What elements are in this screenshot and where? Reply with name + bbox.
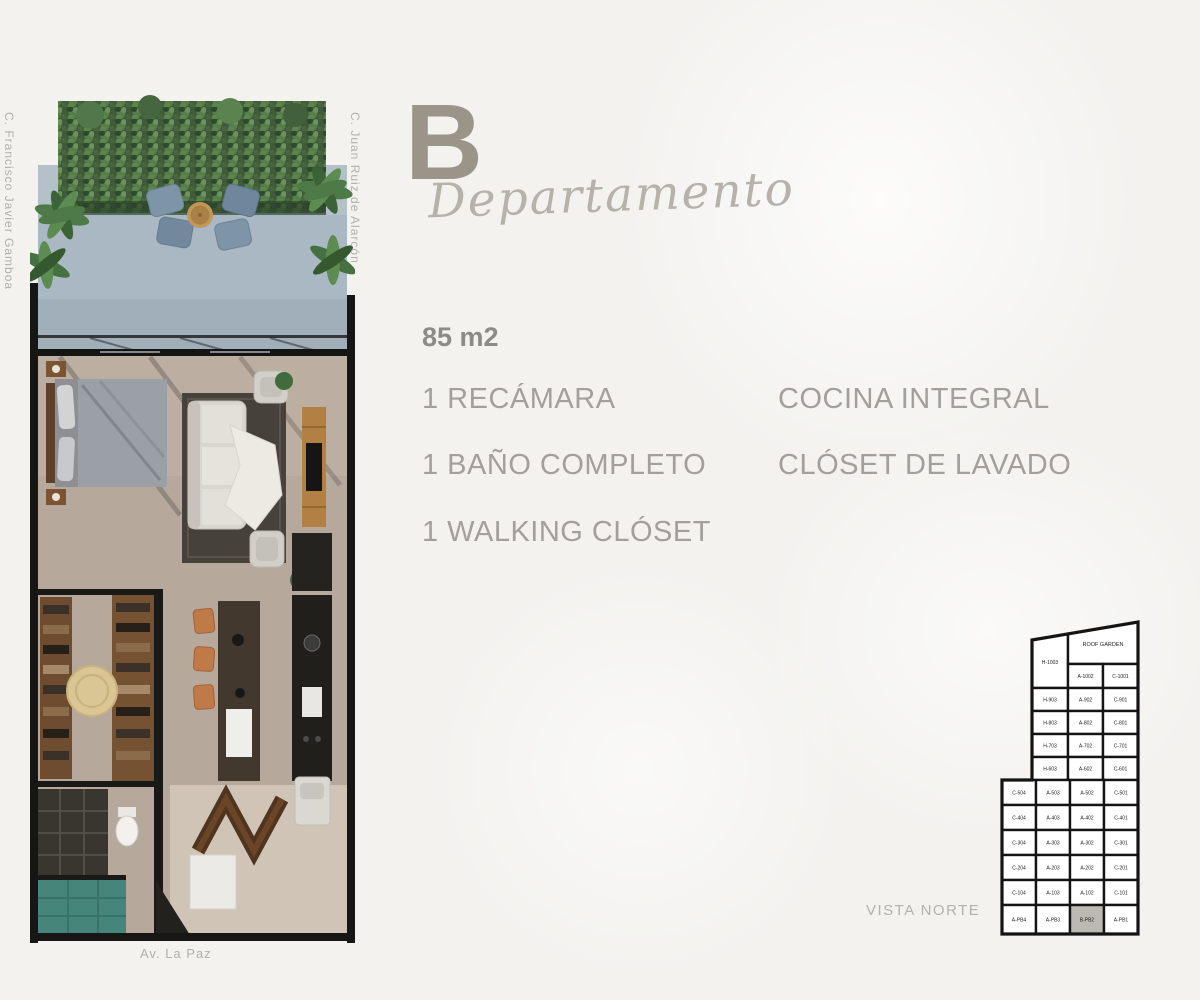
unit-type-word: Departamento — [427, 162, 796, 230]
floor-plan-illustration — [30, 95, 355, 945]
svg-text:C-301: C-301 — [1114, 841, 1128, 847]
terrace-side-table — [187, 202, 213, 228]
svg-text:A-902: A-902 — [1079, 698, 1093, 704]
svg-text:A-202: A-202 — [1080, 866, 1094, 872]
svg-text:H-1003: H-1003 — [1042, 660, 1059, 666]
svg-text:A-PB3: A-PB3 — [1046, 918, 1061, 924]
svg-text:C-801: C-801 — [1114, 721, 1128, 727]
svg-text:C-204: C-204 — [1012, 866, 1026, 872]
svg-text:C-104: C-104 — [1012, 891, 1026, 897]
svg-text:A-602: A-602 — [1079, 767, 1093, 773]
svg-text:C-701: C-701 — [1114, 744, 1128, 750]
feature-walking-closet: 1 WALKING CLÓSET — [422, 516, 711, 549]
terrace-hedge — [58, 95, 326, 215]
feature-cocina: COCINA INTEGRAL — [778, 383, 1050, 416]
street-label-right: C. Juan Ruiz de Alarcón — [348, 112, 362, 264]
bed — [46, 361, 167, 505]
svg-text:A-302: A-302 — [1080, 841, 1094, 847]
svg-text:C-401: C-401 — [1114, 816, 1128, 822]
leaf-watermark — [430, 560, 850, 980]
feature-recamara: 1 RECÁMARA — [422, 383, 616, 416]
svg-text:A-303: A-303 — [1046, 841, 1060, 847]
glass-wall — [38, 349, 347, 356]
svg-text:C-101: C-101 — [1114, 891, 1128, 897]
svg-text:A-203: A-203 — [1046, 866, 1060, 872]
feature-closet-lavado: CLÓSET DE LAVADO — [778, 449, 1071, 482]
svg-text:A-102: A-102 — [1080, 891, 1094, 897]
tall-cabinet — [292, 533, 332, 591]
feature-bano: 1 BAÑO COMPLETO — [422, 449, 706, 482]
svg-text:A-802: A-802 — [1079, 721, 1093, 727]
svg-text:C-404: C-404 — [1012, 816, 1026, 822]
svg-text:C-601: C-601 — [1114, 767, 1128, 773]
svg-text:C-201: C-201 — [1114, 866, 1128, 872]
svg-text:A-103: A-103 — [1046, 891, 1060, 897]
svg-text:C-504: C-504 — [1012, 791, 1026, 797]
svg-text:A-1002: A-1002 — [1077, 674, 1093, 680]
svg-text:A-403: A-403 — [1046, 816, 1060, 822]
svg-text:A-402: A-402 — [1080, 816, 1094, 822]
svg-text:A-503: A-503 — [1046, 791, 1060, 797]
svg-text:H-803: H-803 — [1043, 721, 1057, 727]
svg-text:ROOF GARDEN: ROOF GARDEN — [1083, 642, 1124, 648]
street-label-left: C. Francisco Javier Gamboa — [2, 112, 16, 290]
svg-text:C-501: C-501 — [1114, 791, 1128, 797]
accent-chair-bottom — [250, 531, 284, 567]
svg-text:C-304: C-304 — [1012, 841, 1026, 847]
svg-text:A-PB4: A-PB4 — [1012, 918, 1027, 924]
svg-text:H-903: H-903 — [1043, 698, 1057, 704]
svg-text:A-PB1: A-PB1 — [1114, 918, 1129, 924]
svg-text:H-703: H-703 — [1043, 744, 1057, 750]
vista-norte-caption: VISTA NORTE — [866, 902, 980, 919]
svg-text:H-603: H-603 — [1043, 767, 1057, 773]
svg-text:C-901: C-901 — [1114, 698, 1128, 704]
kitchen — [292, 595, 332, 781]
svg-text:B-PB2: B-PB2 — [1080, 918, 1095, 924]
svg-text:A-502: A-502 — [1080, 791, 1094, 797]
area-label: 85 m2 — [422, 322, 499, 353]
tv-console — [302, 407, 326, 527]
svg-text:A-702: A-702 — [1079, 744, 1093, 750]
street-label-bottom: Av. La Paz — [140, 946, 212, 961]
building-unit-map: H-1003 ROOF GARDEN A-1002 C-1001 H-903 A… — [1000, 616, 1150, 938]
svg-text:C-1001: C-1001 — [1112, 674, 1129, 680]
indoor-plant — [275, 372, 293, 390]
daybed-bench — [295, 777, 330, 825]
